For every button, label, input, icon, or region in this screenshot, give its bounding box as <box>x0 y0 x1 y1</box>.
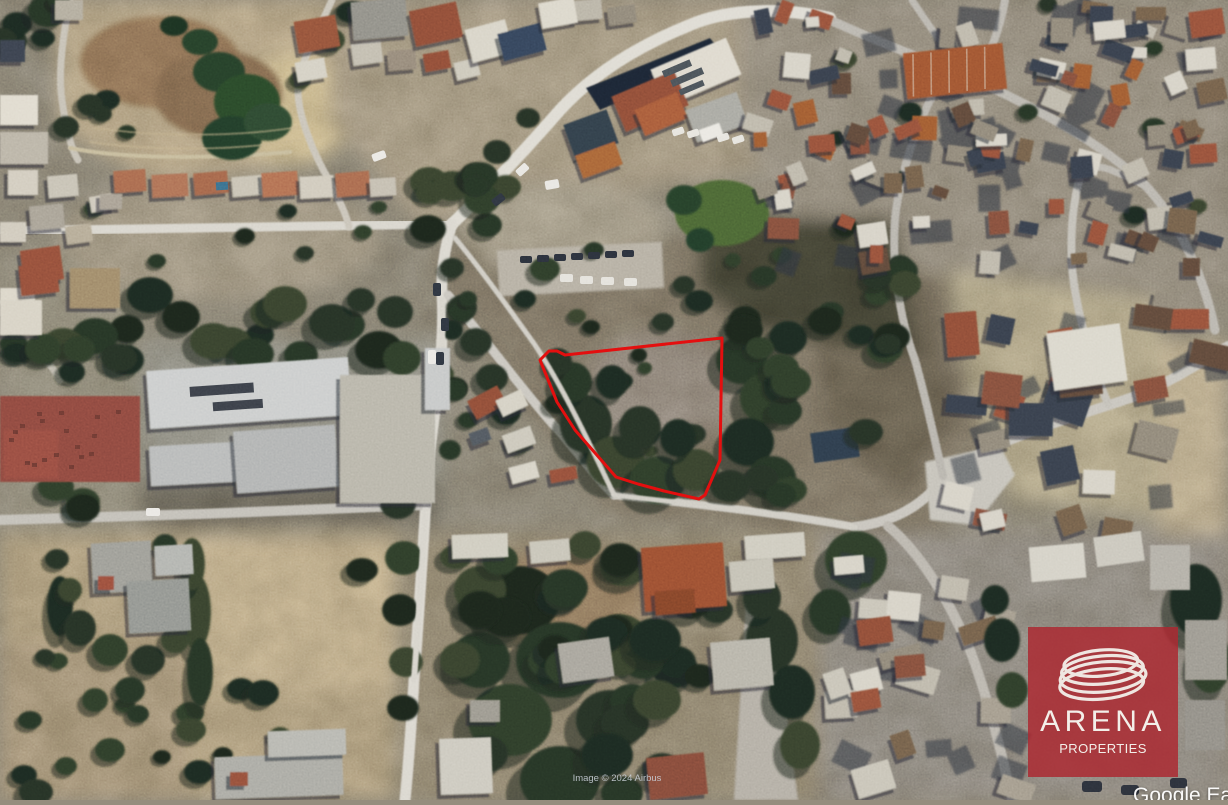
svg-text:ARENA: ARENA <box>1040 705 1166 738</box>
svg-text:Google Ea: Google Ea <box>1133 784 1228 800</box>
svg-text:Image © 2024 Airbus: Image © 2024 Airbus <box>573 773 662 784</box>
svg-text:PROPERTIES: PROPERTIES <box>1059 741 1147 756</box>
